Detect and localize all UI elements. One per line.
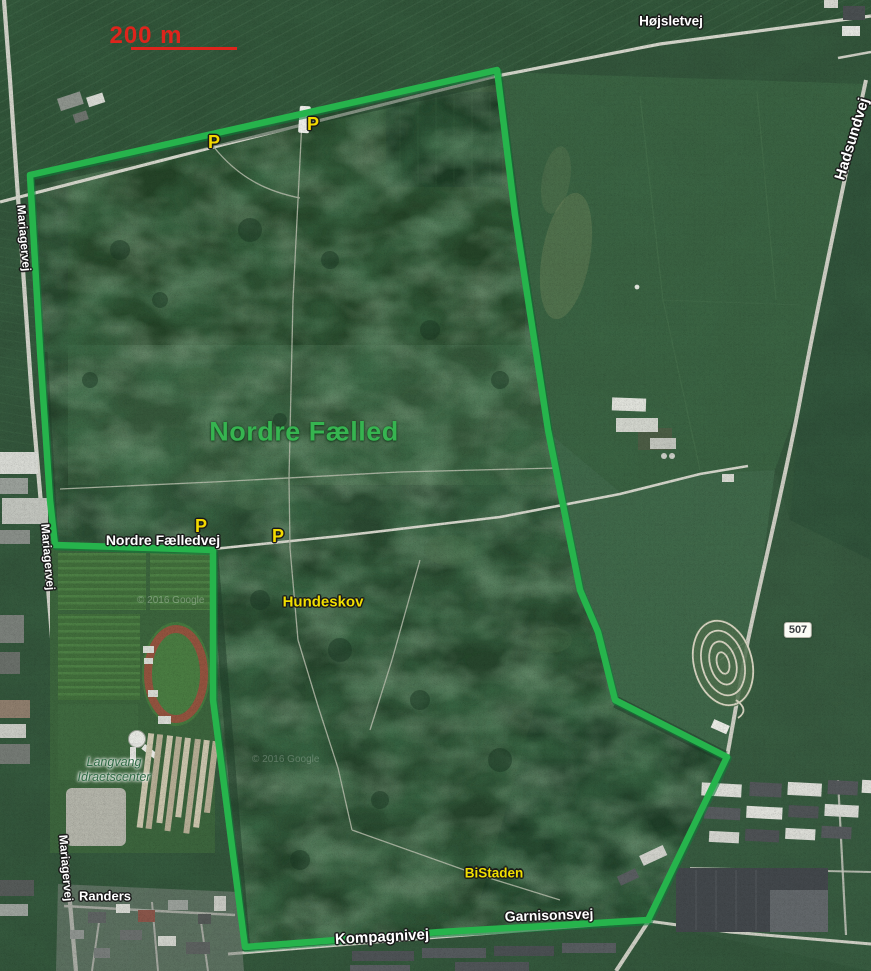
poi-label-bistaden: BiStaden — [465, 866, 524, 880]
road-label-garnisonsvej: Garnisonsvej — [504, 906, 593, 923]
poi-label-langvang-idraetscenter: Langvang Idraetscenter — [78, 755, 151, 785]
road-label-hojsletvej: Højsletvej — [639, 14, 703, 28]
area-label-nordre-faelled: Nordre Fælled — [209, 419, 399, 446]
grain-overlay — [0, 0, 871, 971]
imagery-watermark: © 2016 Google — [252, 754, 319, 765]
map-canvas: 200 m Højsletvej Hadsundvej Mariagervej … — [0, 0, 871, 971]
scale-bar-label: 200 m — [109, 22, 182, 50]
langvang-line2: Idraetscenter — [78, 770, 151, 785]
parking-marker: P — [195, 517, 207, 535]
parking-marker: P — [307, 115, 319, 133]
satellite-map — [0, 0, 871, 971]
langvang-line1: Langvang — [78, 755, 151, 770]
route-badge-507: 507 — [784, 622, 812, 638]
parking-marker: P — [272, 527, 284, 545]
place-label-randers: Randers — [79, 890, 131, 903]
poi-label-hundeskov: Hundeskov — [283, 595, 364, 610]
parking-marker: P — [208, 133, 220, 151]
scale-bar-line — [131, 47, 237, 50]
imagery-watermark: © 2016 Google — [137, 595, 204, 606]
